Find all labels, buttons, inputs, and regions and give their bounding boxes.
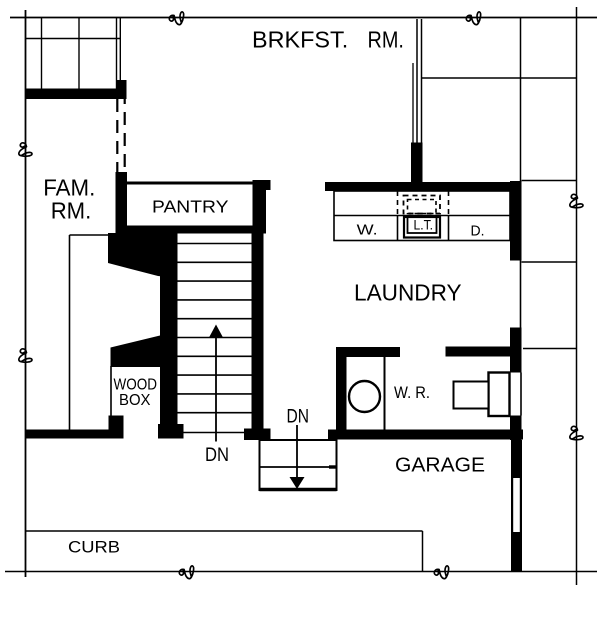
svg-text:D.: D.	[471, 223, 485, 240]
svg-text:W. R.: W. R.	[394, 384, 430, 402]
svg-text:RM.: RM.	[368, 27, 404, 53]
svg-text:GARAGE: GARAGE	[395, 454, 485, 476]
svg-text:L.T.: L.T.	[414, 218, 434, 233]
svg-text:DN: DN	[287, 407, 310, 428]
svg-text:FAM.: FAM.	[43, 175, 95, 201]
svg-text:W.: W.	[357, 222, 378, 239]
svg-text:RM.: RM.	[51, 198, 92, 224]
svg-text:WOOD: WOOD	[114, 377, 158, 394]
svg-text:BRKFST.: BRKFST.	[252, 27, 348, 53]
svg-text:DN: DN	[205, 445, 229, 466]
svg-text:CURB: CURB	[68, 538, 120, 557]
svg-text:LAUNDRY: LAUNDRY	[354, 280, 462, 306]
svg-text:BOX: BOX	[119, 392, 151, 409]
svg-text:PANTRY: PANTRY	[152, 197, 229, 217]
